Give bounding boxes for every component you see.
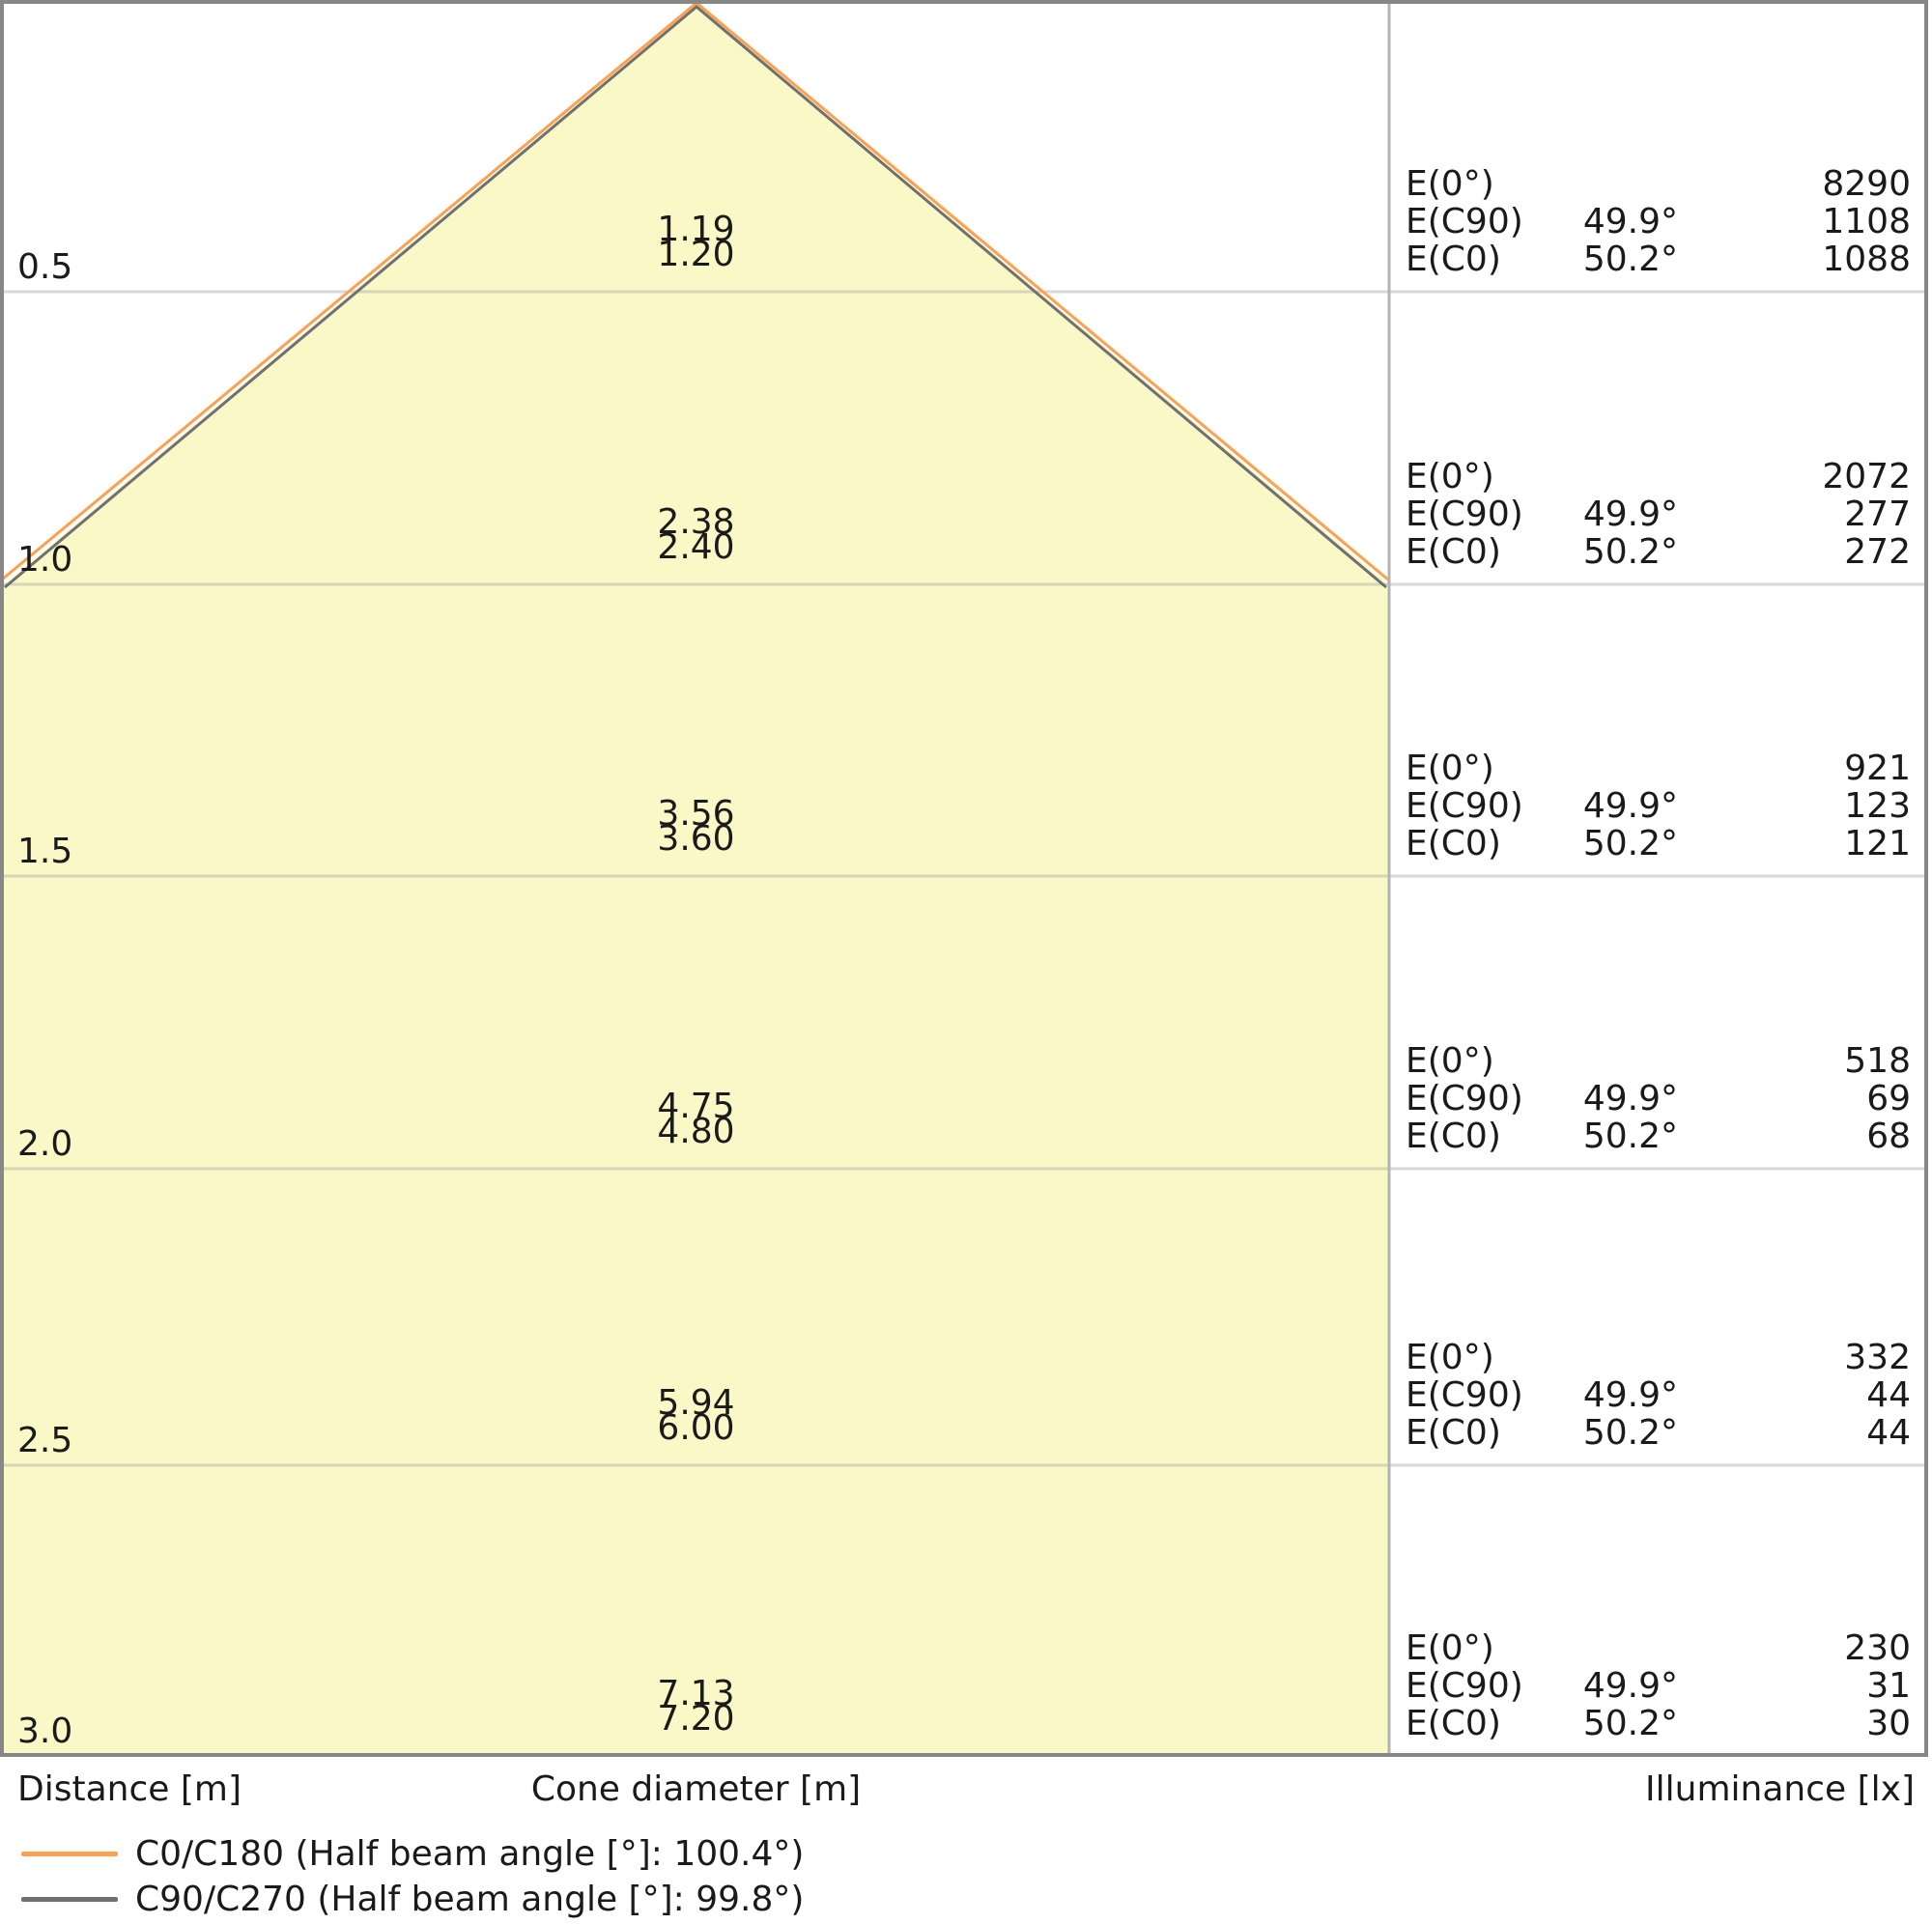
ec90-angle: 49.9° — [1583, 203, 1678, 240]
cone-diameter-c0: 2.40 — [2, 531, 1390, 564]
e0-value: 8290 — [1822, 165, 1911, 203]
ec90-label: E(C90) — [1406, 1667, 1523, 1705]
legend-label-c0-c180: C0/C180 (Half beam angle [°]: 100.4°) — [135, 1833, 804, 1876]
ec90-label: E(C90) — [1406, 203, 1523, 240]
ec0-label: E(C0) — [1406, 533, 1501, 571]
ec0-value: 30 — [1866, 1705, 1911, 1742]
ec90-angle: 49.9° — [1583, 787, 1678, 825]
e0-value: 2072 — [1822, 458, 1911, 495]
ec0-label: E(C0) — [1406, 1118, 1501, 1155]
cone-diameter-c0: 7.20 — [2, 1703, 1390, 1736]
cone-diameter-c0: 6.00 — [2, 1412, 1390, 1445]
ec90-value: 69 — [1866, 1080, 1911, 1118]
ec90-angle: 49.9° — [1583, 1376, 1678, 1414]
light-cone-diagram: 0.5 1.0 1.5 2.0 2.5 3.0 1.19 1.20 2.38 2… — [0, 0, 1932, 1924]
ec90-value: 44 — [1866, 1376, 1911, 1414]
illuminance-block: E(0°)230 E(C90)49.9°31 E(C0)50.2°30 — [1406, 1629, 1911, 1742]
ec0-label: E(C0) — [1406, 825, 1501, 863]
illuminance-axis-caption: Illuminance [lx] — [1406, 1768, 1915, 1811]
ec0-angle: 50.2° — [1583, 533, 1678, 571]
legend-line-c90-c270 — [21, 1897, 118, 1902]
ec0-angle: 50.2° — [1583, 1414, 1678, 1452]
ec0-value: 121 — [1844, 825, 1911, 863]
legend-label-c90-c270: C90/C270 (Half beam angle [°]: 99.8°) — [135, 1879, 804, 1921]
e0-label: E(0°) — [1406, 1629, 1494, 1667]
ec90-label: E(C90) — [1406, 495, 1523, 533]
ec0-value: 272 — [1844, 533, 1911, 571]
ec0-label: E(C0) — [1406, 1414, 1501, 1452]
ec90-angle: 49.9° — [1583, 1667, 1678, 1705]
ec0-angle: 50.2° — [1583, 1705, 1678, 1742]
cone-diameter-c0: 4.80 — [2, 1116, 1390, 1148]
e0-label: E(0°) — [1406, 165, 1494, 203]
illuminance-block: E(0°)8290 E(C90)49.9°1108 E(C0)50.2°1088 — [1406, 165, 1911, 278]
e0-label: E(0°) — [1406, 1042, 1494, 1080]
beam-line-c90-c270 — [5, 7, 1386, 587]
ec90-label: E(C90) — [1406, 1080, 1523, 1118]
e0-value: 230 — [1844, 1629, 1911, 1667]
beam-line-c0-c180 — [2, 3, 1389, 580]
illuminance-block: E(0°)518 E(C90)49.9°69 E(C0)50.2°68 — [1406, 1042, 1911, 1155]
cone-diameter-c0: 3.60 — [2, 823, 1390, 856]
ec0-label: E(C0) — [1406, 1705, 1501, 1742]
legend-line-c0-c180 — [21, 1852, 118, 1856]
e0-value: 332 — [1844, 1339, 1911, 1376]
e0-label: E(0°) — [1406, 1339, 1494, 1376]
ec90-label: E(C90) — [1406, 787, 1523, 825]
ec90-label: E(C90) — [1406, 1376, 1523, 1414]
ec0-angle: 50.2° — [1583, 240, 1678, 278]
cone-diameter-c0: 1.20 — [2, 239, 1390, 271]
ec90-value: 31 — [1866, 1667, 1911, 1705]
cone-diameter-axis-caption: Cone diameter [m] — [2, 1768, 1390, 1811]
e0-label: E(0°) — [1406, 458, 1494, 495]
ec90-angle: 49.9° — [1583, 495, 1678, 533]
ec90-value: 123 — [1844, 787, 1911, 825]
illuminance-block: E(0°)2072 E(C90)49.9°277 E(C0)50.2°272 — [1406, 458, 1911, 571]
ec0-value: 68 — [1866, 1118, 1911, 1155]
ec0-value: 44 — [1866, 1414, 1911, 1452]
ec90-angle: 49.9° — [1583, 1080, 1678, 1118]
ec90-value: 277 — [1844, 495, 1911, 533]
e0-value: 518 — [1844, 1042, 1911, 1080]
ec0-label: E(C0) — [1406, 240, 1501, 278]
illuminance-block: E(0°)332 E(C90)49.9°44 E(C0)50.2°44 — [1406, 1339, 1911, 1452]
e0-value: 921 — [1844, 750, 1911, 787]
ec0-value: 1088 — [1822, 240, 1911, 278]
e0-label: E(0°) — [1406, 750, 1494, 787]
ec90-value: 1108 — [1822, 203, 1911, 240]
illuminance-block: E(0°)921 E(C90)49.9°123 E(C0)50.2°121 — [1406, 750, 1911, 863]
ec0-angle: 50.2° — [1583, 1118, 1678, 1155]
ec0-angle: 50.2° — [1583, 825, 1678, 863]
